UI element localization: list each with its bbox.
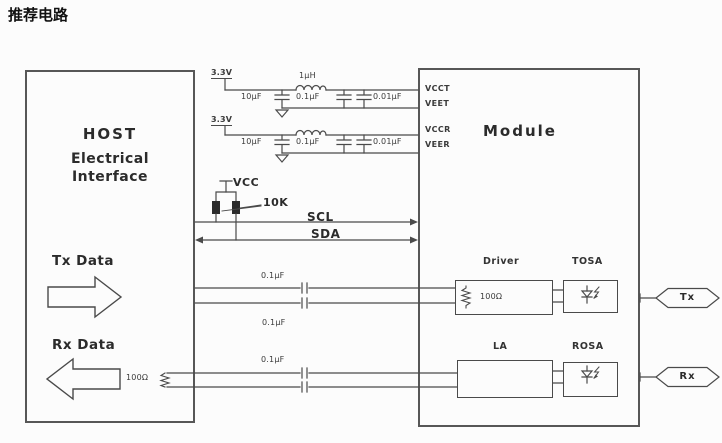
filter2-c2-label: 0.1μF	[296, 138, 319, 146]
la-rosa-wiring	[553, 366, 599, 383]
sda-arrowhead-right	[410, 237, 418, 244]
rx-termination-resistor-icon	[161, 373, 169, 387]
schematic-page: 推荐电路 HOST Electrical Interface Tx Data R…	[0, 0, 722, 443]
filter1-cap2-icon	[337, 90, 351, 108]
pullup-resistor-sda	[232, 201, 240, 214]
tx-pair-wiring	[195, 283, 455, 308]
filter1-inductor-icon	[296, 86, 326, 91]
tx-cap-top-icon	[302, 283, 307, 293]
filter2-ground-icon	[276, 155, 288, 162]
filter2-cap3-icon	[357, 135, 371, 153]
rx-cap-bottom-icon	[302, 382, 307, 392]
scl-label: SCL	[307, 211, 334, 223]
filter1-cap3-icon	[357, 90, 371, 108]
sda-label: SDA	[311, 228, 340, 240]
rosa-photodiode-icon	[582, 366, 599, 383]
filter2-cap2-icon	[337, 135, 351, 153]
filter1-inductor-label: 1μH	[299, 72, 316, 80]
rx-pair-wiring	[161, 368, 457, 392]
filter1-ground-icon	[276, 110, 288, 117]
tosa-laser-diode-icon	[582, 286, 599, 303]
filter2-inductor-icon	[296, 131, 326, 136]
tx-cap-bottom-label: 0.1μF	[262, 319, 285, 327]
filter1-c2-label: 0.1μF	[296, 93, 319, 101]
rx-port-label: Rx	[656, 372, 719, 382]
filter1-c3-label: 0.01μF	[373, 93, 402, 101]
pullup-resistor-scl	[212, 201, 220, 214]
circuit-wiring	[0, 0, 722, 443]
scl-arrowhead	[410, 219, 418, 226]
filter2-c3-label: 0.01μF	[373, 138, 402, 146]
tx-port-label: Tx	[656, 293, 719, 303]
filter1-supply-label: 3.3V	[211, 69, 232, 79]
vcc-tap-icon	[220, 181, 232, 192]
vcc-label: VCC	[233, 177, 259, 188]
rx-direction-arrow-icon	[47, 359, 120, 399]
filter2-c1-label: 10μF	[241, 138, 262, 146]
tx-cap-bottom-icon	[302, 298, 307, 308]
filter2-supply-label: 3.3V	[211, 116, 232, 126]
filter1-cap1-icon	[275, 90, 289, 108]
driver-resistor-icon	[462, 286, 470, 308]
tx-cap-top-label: 0.1μF	[261, 272, 284, 280]
rx-cap-top-icon	[302, 368, 307, 378]
rx-cap-top-label: 0.1μF	[261, 356, 284, 364]
tx-direction-arrow-icon	[48, 277, 121, 317]
driver-tosa-wiring	[462, 286, 599, 308]
filter1-c1-label: 10μF	[241, 93, 262, 101]
pullup-leader-lines	[222, 205, 261, 211]
sda-arrowhead-left	[195, 237, 203, 244]
filter2-cap1-icon	[275, 135, 289, 153]
pullup-value-label: 10K	[263, 197, 288, 208]
